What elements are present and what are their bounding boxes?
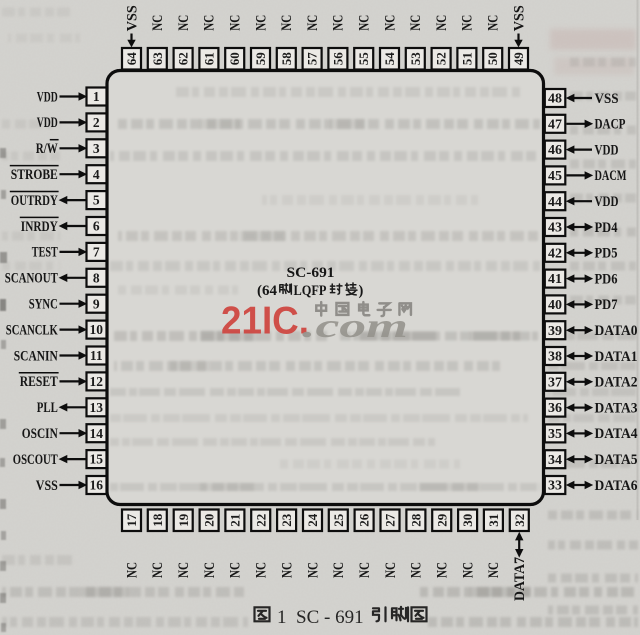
- svg-text:NC: NC: [382, 15, 398, 31]
- svg-text:NC: NC: [409, 562, 425, 578]
- svg-text:PD7: PD7: [595, 297, 618, 313]
- svg-text:21IC.: 21IC.: [221, 300, 309, 343]
- svg-text:NC: NC: [150, 15, 166, 31]
- svg-text:VSS: VSS: [36, 478, 58, 494]
- svg-text:DATA3: DATA3: [595, 400, 638, 416]
- svg-text:2: 2: [93, 115, 100, 130]
- svg-text:NC: NC: [305, 562, 321, 578]
- svg-text:13: 13: [90, 400, 104, 415]
- svg-text:NC: NC: [124, 562, 140, 578]
- svg-text:DACM: DACM: [595, 168, 627, 184]
- svg-text:NC: NC: [228, 562, 244, 578]
- svg-text:NC: NC: [486, 15, 502, 31]
- svg-text:NC: NC: [253, 15, 269, 31]
- svg-text:43: 43: [548, 220, 562, 235]
- svg-text:VDD: VDD: [595, 142, 619, 158]
- svg-text:55: 55: [356, 52, 371, 65]
- svg-text:19: 19: [176, 513, 191, 527]
- svg-text:64: 64: [124, 52, 139, 65]
- svg-text:STROBE: STROBE: [11, 167, 58, 183]
- svg-text:NC: NC: [357, 15, 373, 31]
- svg-text:.com: .com: [302, 308, 408, 345]
- svg-text:DACP: DACP: [595, 117, 626, 133]
- svg-text:35: 35: [548, 426, 562, 441]
- svg-text:NC: NC: [176, 15, 192, 31]
- svg-text:5: 5: [93, 193, 100, 208]
- svg-text:NC: NC: [408, 15, 424, 31]
- svg-text:NC: NC: [460, 15, 476, 31]
- svg-text:NC: NC: [331, 562, 347, 578]
- svg-text:SCANOUT: SCANOUT: [5, 271, 58, 287]
- svg-text:14: 14: [90, 426, 104, 441]
- svg-text:52: 52: [434, 52, 449, 65]
- svg-text:56: 56: [330, 52, 345, 65]
- svg-text:OSCIN: OSCIN: [22, 426, 58, 442]
- svg-text:NC: NC: [279, 562, 295, 578]
- svg-text:INRDY: INRDY: [21, 219, 58, 235]
- svg-text:53: 53: [408, 52, 423, 65]
- svg-text:62: 62: [176, 52, 191, 65]
- svg-text:49: 49: [511, 52, 526, 65]
- svg-text:NC: NC: [383, 562, 399, 578]
- svg-text:LQFP: LQFP: [294, 283, 327, 299]
- svg-text:39: 39: [548, 323, 562, 338]
- svg-text:DATA0: DATA0: [595, 323, 638, 339]
- svg-text:22: 22: [253, 514, 268, 527]
- svg-text:PD5: PD5: [595, 246, 618, 262]
- svg-text:57: 57: [305, 52, 320, 65]
- svg-text:NC: NC: [486, 562, 502, 578]
- svg-text:SCANCLK: SCANCLK: [6, 322, 59, 338]
- svg-text:(64: (64: [257, 283, 277, 299]
- svg-text:12: 12: [90, 374, 104, 389]
- svg-text:NC: NC: [176, 562, 192, 578]
- svg-text:61: 61: [201, 52, 216, 65]
- svg-text:NC: NC: [305, 15, 321, 31]
- svg-text:NC: NC: [228, 15, 244, 31]
- svg-text:PLL: PLL: [37, 400, 58, 416]
- svg-text:6: 6: [93, 219, 100, 234]
- svg-text:34: 34: [548, 452, 562, 467]
- svg-text:VDD: VDD: [37, 89, 58, 105]
- svg-text:1: 1: [93, 89, 100, 104]
- svg-text:51: 51: [459, 52, 474, 65]
- svg-text:63: 63: [150, 52, 165, 65]
- svg-text:NC: NC: [435, 562, 451, 578]
- svg-text:DATA5: DATA5: [595, 452, 638, 468]
- svg-text:7: 7: [93, 245, 100, 260]
- svg-text:SYNC: SYNC: [29, 297, 58, 313]
- svg-text:NC: NC: [434, 15, 450, 31]
- svg-text:38: 38: [548, 349, 562, 364]
- svg-text:DATA4: DATA4: [595, 426, 638, 442]
- svg-text:OSCOUT: OSCOUT: [13, 452, 58, 468]
- svg-text:NC: NC: [357, 562, 373, 578]
- svg-text:PD4: PD4: [595, 220, 618, 236]
- svg-text:30: 30: [460, 514, 475, 527]
- svg-text:37: 37: [548, 374, 562, 389]
- svg-text:DATA6: DATA6: [595, 478, 638, 494]
- svg-text:54: 54: [382, 52, 397, 65]
- svg-text:27: 27: [383, 513, 398, 527]
- svg-text:17: 17: [124, 513, 139, 527]
- svg-text:36: 36: [548, 400, 562, 415]
- svg-text:46: 46: [548, 142, 562, 157]
- svg-text:47: 47: [548, 116, 562, 131]
- svg-text:59: 59: [253, 52, 268, 65]
- svg-text:21: 21: [227, 514, 242, 527]
- svg-text:32: 32: [512, 514, 527, 527]
- svg-text:VDD: VDD: [595, 194, 619, 210]
- svg-text:VSS: VSS: [124, 5, 140, 31]
- svg-text:NC: NC: [202, 15, 218, 31]
- svg-text:SC - 691: SC - 691: [296, 607, 364, 628]
- svg-text:PD6: PD6: [595, 271, 618, 287]
- svg-text:42: 42: [548, 245, 562, 260]
- svg-text:10: 10: [90, 322, 104, 337]
- svg-text:28: 28: [408, 513, 423, 527]
- svg-text:NC: NC: [279, 15, 295, 31]
- svg-text:VSS: VSS: [511, 5, 527, 31]
- svg-text:NC: NC: [460, 562, 476, 578]
- svg-text:3: 3: [93, 141, 100, 156]
- svg-text:40: 40: [548, 297, 562, 312]
- svg-text:23: 23: [279, 513, 294, 527]
- svg-text:15: 15: [90, 452, 104, 467]
- svg-text:DATA2: DATA2: [595, 375, 638, 391]
- svg-text:18: 18: [150, 513, 165, 527]
- svg-text:TEST: TEST: [32, 245, 58, 261]
- svg-text:NC: NC: [202, 562, 218, 578]
- svg-text:41: 41: [548, 271, 562, 286]
- svg-text:60: 60: [227, 52, 242, 65]
- svg-text:RESET: RESET: [20, 374, 58, 390]
- svg-text:29: 29: [434, 513, 449, 527]
- svg-text:4: 4: [93, 167, 100, 182]
- svg-text:OUTRDY: OUTRDY: [11, 193, 58, 209]
- svg-text:NC: NC: [150, 562, 166, 578]
- svg-text:): ): [359, 283, 364, 299]
- svg-text:SCANIN: SCANIN: [14, 348, 58, 364]
- svg-text:20: 20: [202, 514, 217, 527]
- svg-text:58: 58: [279, 52, 294, 65]
- svg-text:NC: NC: [331, 15, 347, 31]
- svg-text:R/W: R/W: [36, 141, 58, 157]
- svg-text:26: 26: [357, 513, 372, 527]
- svg-text:8: 8: [93, 270, 100, 285]
- svg-text:48: 48: [548, 91, 562, 106]
- svg-text:50: 50: [485, 52, 500, 65]
- svg-text:24: 24: [305, 513, 320, 527]
- svg-text:9: 9: [93, 296, 100, 311]
- svg-text:VDD: VDD: [37, 115, 58, 131]
- svg-text:44: 44: [548, 194, 562, 209]
- svg-text:DATA7: DATA7: [512, 557, 528, 601]
- svg-text:45: 45: [548, 168, 562, 183]
- svg-text:11: 11: [90, 348, 103, 363]
- svg-text:DATA1: DATA1: [595, 349, 638, 365]
- svg-text:16: 16: [90, 478, 104, 493]
- svg-text:SC-691: SC-691: [287, 265, 335, 281]
- svg-text:NC: NC: [254, 562, 270, 578]
- svg-text:31: 31: [486, 514, 501, 527]
- svg-text:25: 25: [331, 513, 346, 527]
- svg-text:33: 33: [548, 478, 562, 493]
- svg-text:1: 1: [277, 607, 287, 628]
- svg-text:VSS: VSS: [595, 91, 619, 107]
